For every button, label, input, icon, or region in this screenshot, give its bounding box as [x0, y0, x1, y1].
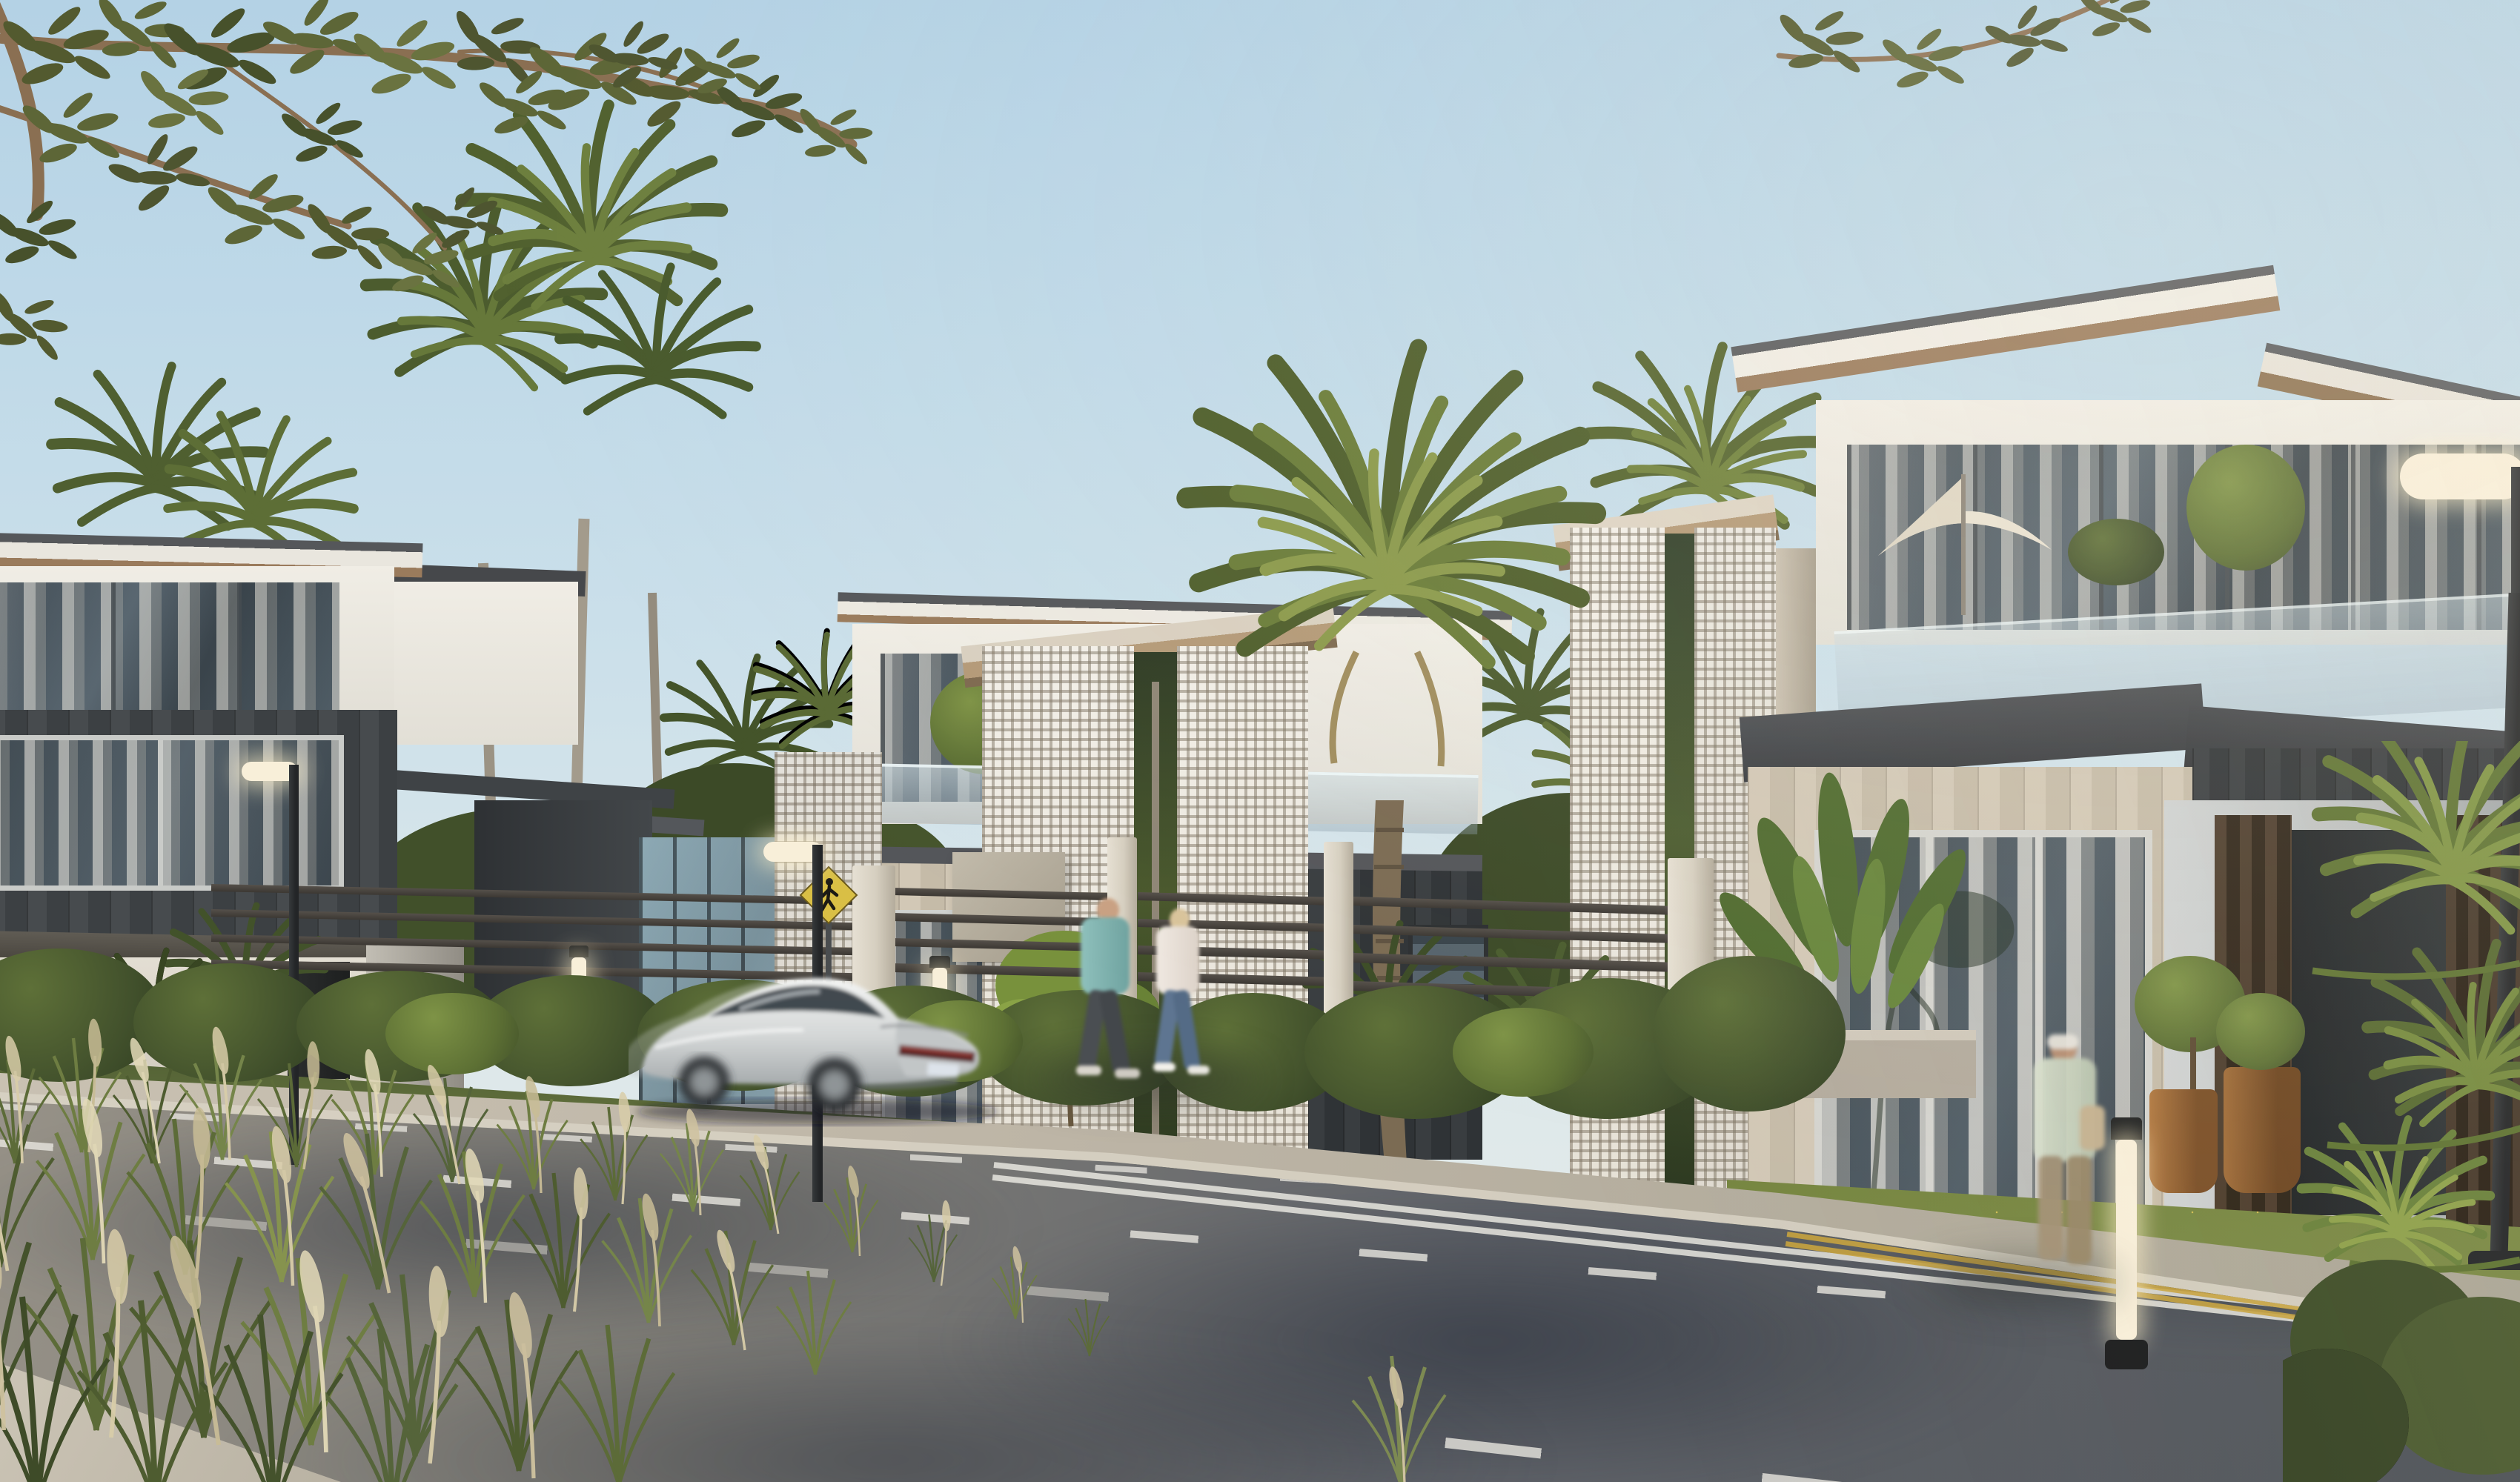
foreground-grass: [0, 941, 1171, 1482]
overhanging-tree-branches: [0, 0, 2520, 519]
rendered-scene: [0, 0, 2520, 1482]
road-grass-sprig: [1334, 1326, 1468, 1482]
corner-areca-palms: [2283, 741, 2520, 1482]
pedestrian-entrance: [2022, 1034, 2111, 1286]
bollard-light: [2111, 1117, 2142, 1399]
